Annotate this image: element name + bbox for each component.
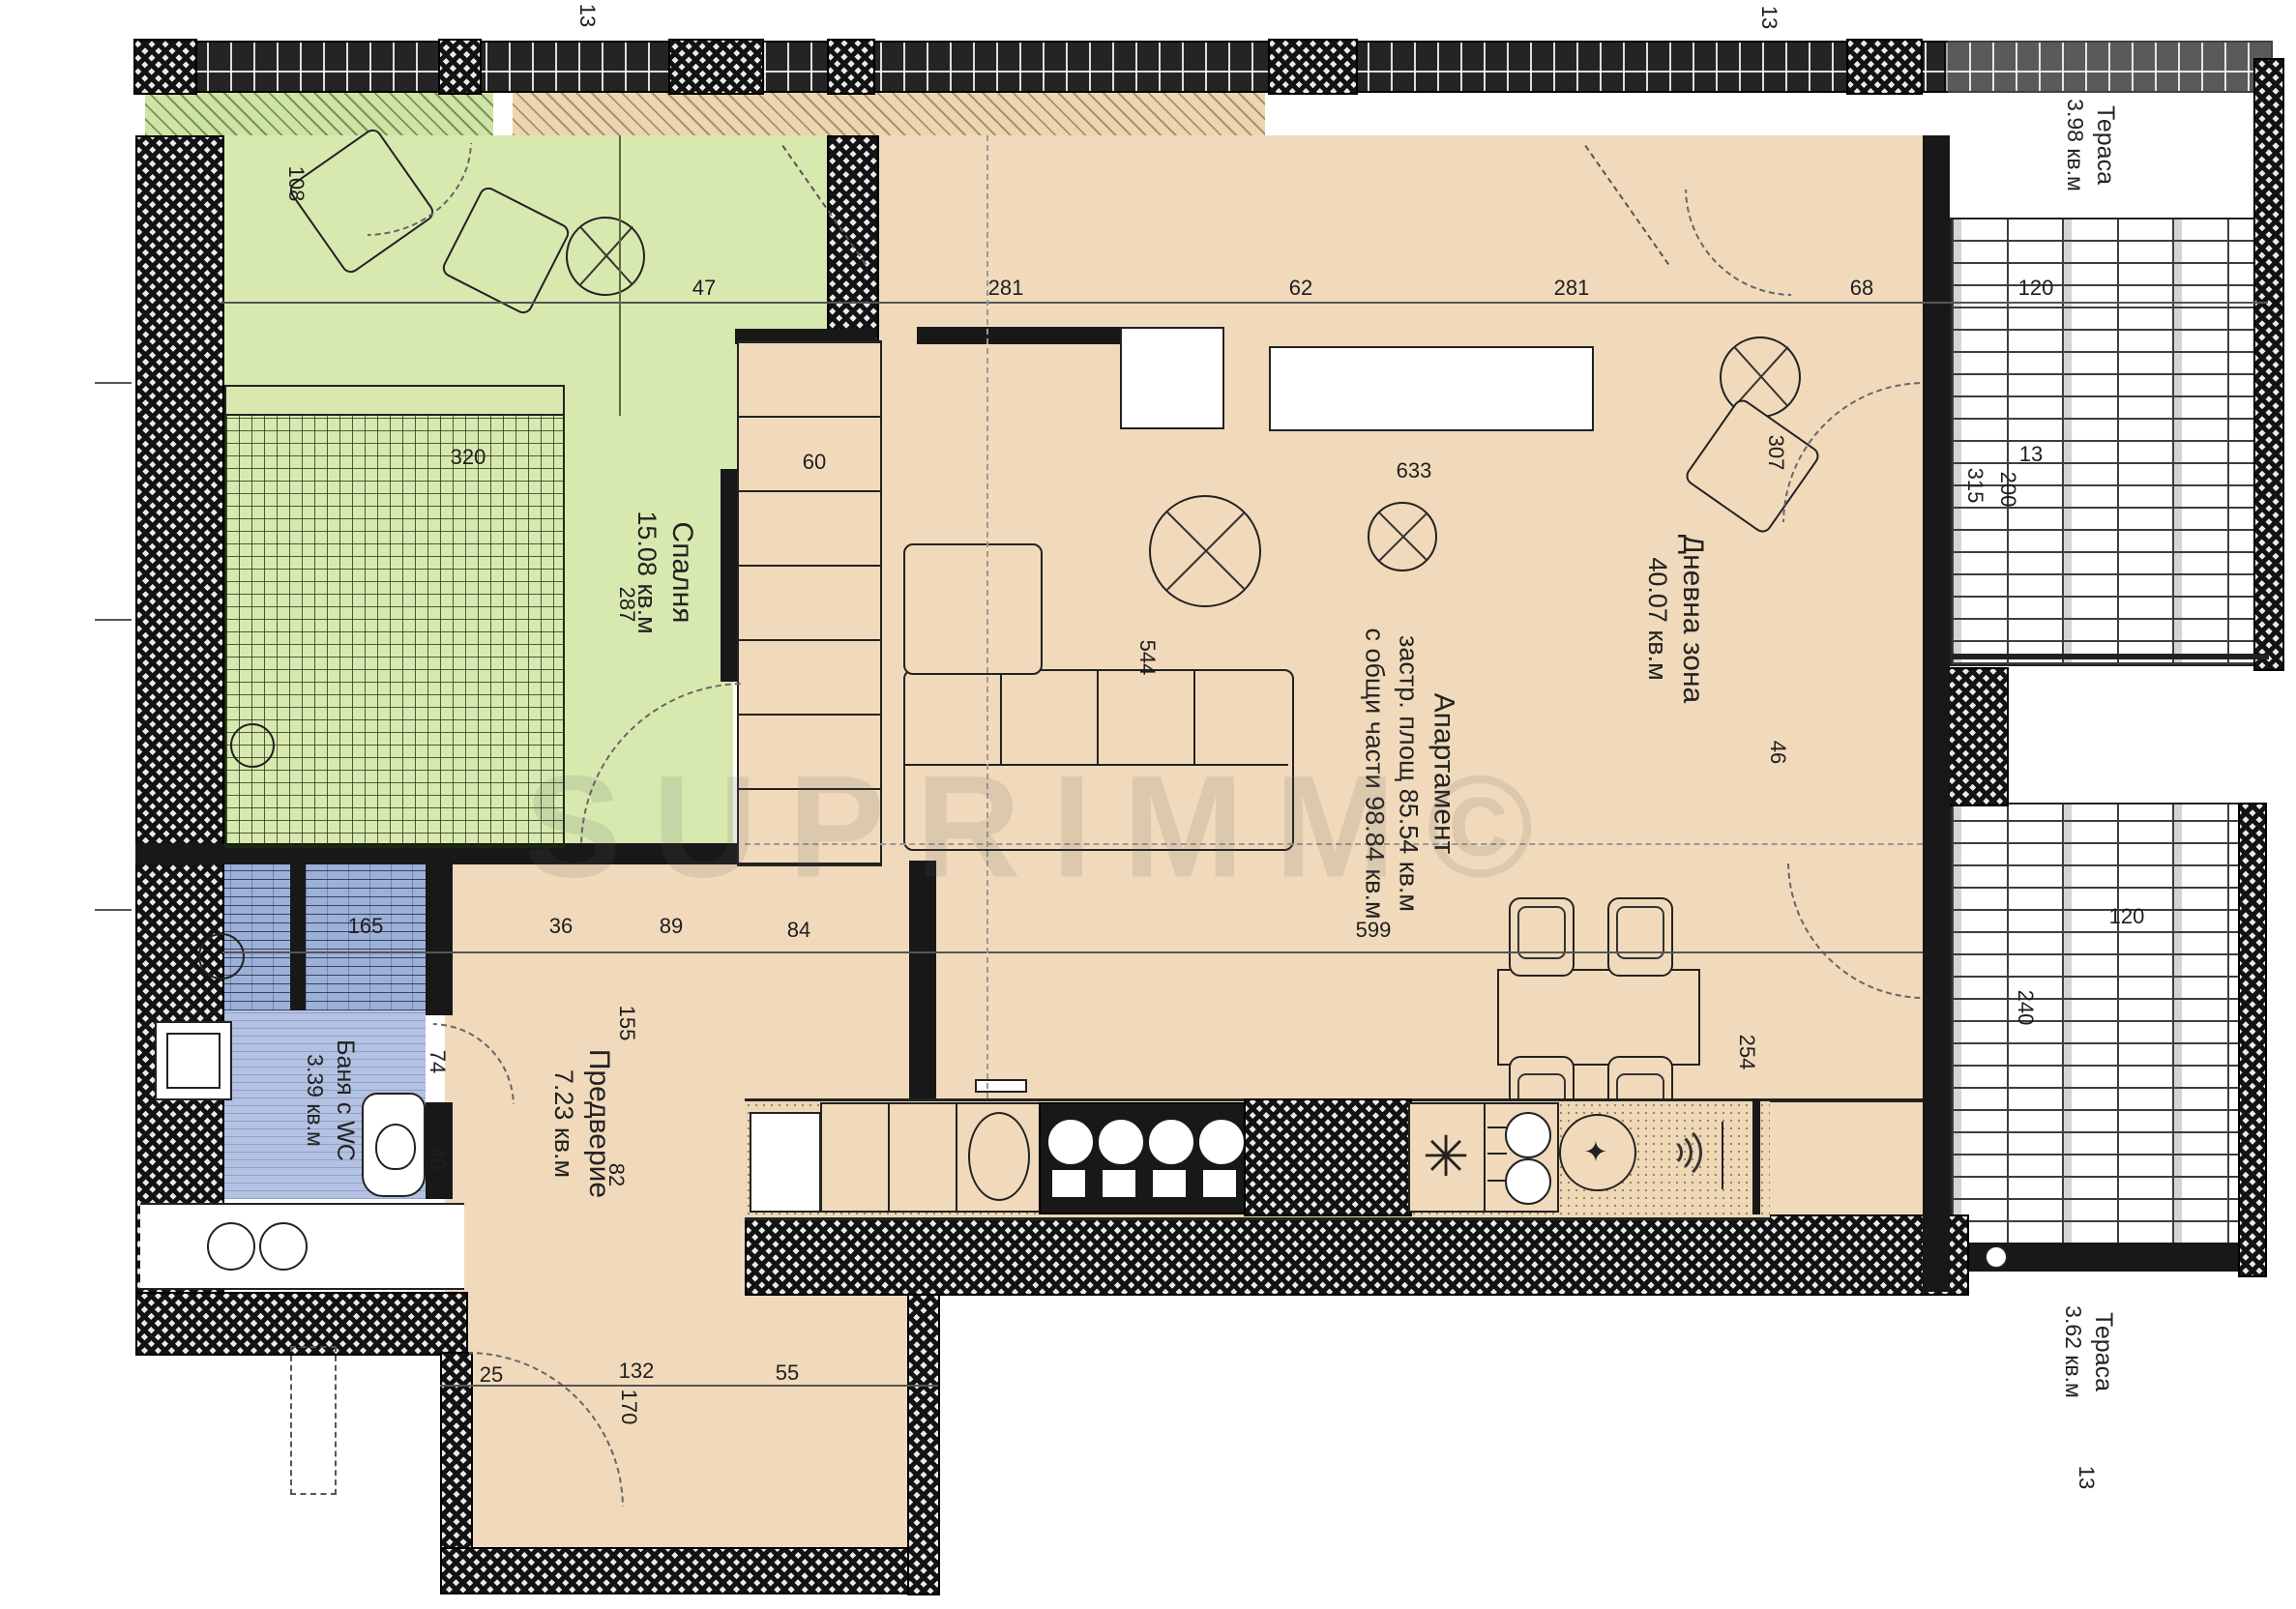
terrace-strip-living xyxy=(513,89,1265,137)
cooktop-shelf-line xyxy=(1487,1180,1507,1182)
dimension-label: 315 xyxy=(1962,468,1987,504)
dimension-label: 108 xyxy=(283,166,309,202)
wall-pier xyxy=(1268,39,1358,95)
dimension-label: 13 xyxy=(2074,1466,2099,1489)
room-label-terrace-bottom: Тераса 3.62 кв.м xyxy=(2059,1305,2119,1398)
window-band-top xyxy=(135,41,1948,93)
round-table-small xyxy=(1368,502,1437,571)
sink-drain-icon: ✦ xyxy=(1583,1136,1607,1170)
stove-burner xyxy=(1099,1120,1143,1164)
left-tick xyxy=(95,382,132,384)
room-label-bath: Баня с WC 3.39 кв.м xyxy=(301,1039,361,1161)
wall-terrace-bottom-right xyxy=(2238,803,2267,1277)
kitchen-counter-dark xyxy=(1244,1098,1412,1216)
bedside-table xyxy=(230,723,275,768)
dining-chair xyxy=(1607,897,1673,977)
dimension-label: 36 xyxy=(549,914,573,939)
dimension-label: 132 xyxy=(619,1359,655,1384)
entry-landing xyxy=(290,1346,337,1495)
stove-burner xyxy=(1149,1120,1193,1164)
dimension-label: 13 xyxy=(574,4,600,27)
dimension-label: 155 xyxy=(614,1006,639,1041)
wall-hall-right xyxy=(907,1292,940,1595)
kitchen-oval-sink xyxy=(968,1112,1030,1201)
bed-headboard xyxy=(224,385,565,416)
wall-column xyxy=(827,135,879,347)
dimension-label: 74 xyxy=(425,1050,450,1073)
dimension-label: 60 xyxy=(803,450,826,475)
dimension-label: 544 xyxy=(1134,640,1160,676)
left-tick xyxy=(95,619,132,621)
room-label-terrace-top: Тераса 3.98 кв.м xyxy=(2061,99,2121,191)
stove-knob xyxy=(1103,1170,1135,1197)
bedroom-terrace-door-arc xyxy=(368,143,472,236)
wall-stub-living-top xyxy=(917,327,1122,344)
dimension-label: 89 xyxy=(660,914,683,939)
terrace-bottom-area-value: 3.62 кв.м xyxy=(2059,1305,2088,1398)
wall-pier xyxy=(438,39,482,95)
left-tick xyxy=(95,909,132,911)
dimension-label: 120 xyxy=(2018,276,2054,301)
wall-hall-bottom xyxy=(440,1547,937,1594)
dimension-label: 13 xyxy=(1756,6,1781,29)
room-label-living: Дневна зона 40.07 кв.м xyxy=(1640,535,1712,703)
tv-console xyxy=(1269,346,1594,431)
terrace-top-area-value: 3.98 кв.м xyxy=(2061,99,2090,191)
terrace-top-bottom-line xyxy=(1950,654,2269,659)
wall-living-east xyxy=(1923,135,1950,1292)
wall-terrace-top-right xyxy=(2253,58,2284,671)
bath-area-value: 3.39 кв.м xyxy=(301,1039,330,1161)
terrace-strip-bedroom xyxy=(145,89,493,137)
wall-pier xyxy=(1846,39,1923,95)
round-table-large xyxy=(1149,495,1261,607)
dimension-label: 68 xyxy=(1850,276,1873,301)
terrace-top-deck xyxy=(1950,218,2273,666)
toilet xyxy=(362,1093,426,1197)
dimension-label: 84 xyxy=(787,918,810,943)
dining-table xyxy=(1497,969,1700,1066)
bath-name: Баня с WC xyxy=(330,1039,362,1161)
kitchen-appliance xyxy=(750,1112,821,1213)
dimension-label: 82 xyxy=(603,1163,629,1186)
terrace-bottom-name: Тераса xyxy=(2088,1305,2120,1398)
terrace-top-name: Тераса xyxy=(2090,99,2122,191)
dimension-label: 40 xyxy=(425,1147,450,1170)
terrace-door-arc-bottom xyxy=(1787,863,1923,999)
dimension-label: 633 xyxy=(1397,458,1432,483)
dimension-label: 240 xyxy=(2013,990,2038,1026)
watermark: SUPRIMM© xyxy=(525,744,1565,911)
dimension-label: 120 xyxy=(2109,904,2145,929)
counter-end-wall xyxy=(1752,1098,1760,1214)
bedroom-name: Спалня xyxy=(663,511,701,633)
cooktop-shelf-line xyxy=(1487,1153,1507,1155)
dimension-label: 287 xyxy=(614,587,639,623)
dimension-line-top xyxy=(221,302,2268,304)
wall-shower-divider xyxy=(290,861,306,1010)
hall-area-value: 7.23 кв.м xyxy=(546,1049,580,1198)
room-label-bedroom: Спалня 15.08 кв.м xyxy=(630,511,701,633)
dimension-label: 13 xyxy=(2019,442,2043,467)
floor-plan: ✳ ✦ Спалня 15.08 кв.м Дневна зона 40.07 xyxy=(0,0,2296,1609)
dimension-label: 55 xyxy=(776,1360,799,1386)
washer-drum xyxy=(207,1222,255,1271)
wall-bath-hall xyxy=(426,861,453,1015)
living-door-arc-top xyxy=(1685,190,1791,296)
living-area-value: 40.07 кв.м xyxy=(1640,535,1674,703)
dimension-label: 62 xyxy=(1289,276,1312,301)
dimension-line-bottom xyxy=(440,1385,938,1387)
heater-arc-icon xyxy=(1644,1124,1702,1182)
wall-pier xyxy=(133,39,197,95)
cooktop-burner xyxy=(1505,1158,1551,1205)
dimension-label: 281 xyxy=(1554,276,1590,301)
grid-line-bedroom xyxy=(619,135,621,416)
dimension-label: 599 xyxy=(1356,918,1392,943)
cabinet-top xyxy=(1120,327,1224,429)
stove-knob xyxy=(1153,1170,1186,1197)
stove-burner xyxy=(1048,1120,1093,1164)
stove-knob xyxy=(1203,1170,1236,1197)
wall-left xyxy=(135,135,224,1296)
dimension-label: 307 xyxy=(1763,435,1788,471)
terrace-parapet-top xyxy=(1944,41,2273,93)
kitchen-cabinet xyxy=(820,1102,892,1213)
dimension-label: 254 xyxy=(1734,1035,1759,1070)
ceiling-fan-bedroom-icon xyxy=(566,217,645,296)
dimension-label: 170 xyxy=(616,1390,641,1425)
dimension-label: 200 xyxy=(1995,472,2020,508)
wall-pier xyxy=(827,39,875,95)
wall-pier xyxy=(668,39,764,95)
terrace-drain xyxy=(1985,1245,2008,1269)
dimension-label: 46 xyxy=(1765,741,1790,764)
dimension-label: 47 xyxy=(692,276,716,301)
kitchen-shelf xyxy=(975,1079,1027,1093)
bath-vanity-basin xyxy=(166,1033,221,1089)
cooktop-shelf-line xyxy=(1487,1126,1507,1128)
fridge-snowflake-icon: ✳ xyxy=(1423,1124,1470,1189)
living-name: Дневна зона xyxy=(1674,535,1712,703)
terrace-door-arc-top xyxy=(1782,382,1923,522)
washer-drum xyxy=(259,1222,308,1271)
dimension-label: 320 xyxy=(451,445,486,470)
dimension-label: 281 xyxy=(988,276,1024,301)
kitchen-cabinet xyxy=(888,1102,959,1213)
dimension-label: 25 xyxy=(480,1362,503,1388)
sofa-chaise xyxy=(903,543,1043,675)
dimension-line-middle xyxy=(222,951,1923,953)
terrace-bottom-deck xyxy=(1950,803,2244,1246)
bed xyxy=(224,414,565,848)
stove-knob xyxy=(1052,1170,1085,1197)
dimension-label: 165 xyxy=(348,914,384,939)
stove-burner xyxy=(1199,1120,1244,1164)
shower-drain xyxy=(198,933,245,980)
cooktop-burner xyxy=(1505,1112,1551,1158)
kitchen-wall-line xyxy=(1770,1098,1923,1102)
counter-divider xyxy=(1722,1122,1723,1189)
wall-bottom-main xyxy=(745,1214,1969,1296)
